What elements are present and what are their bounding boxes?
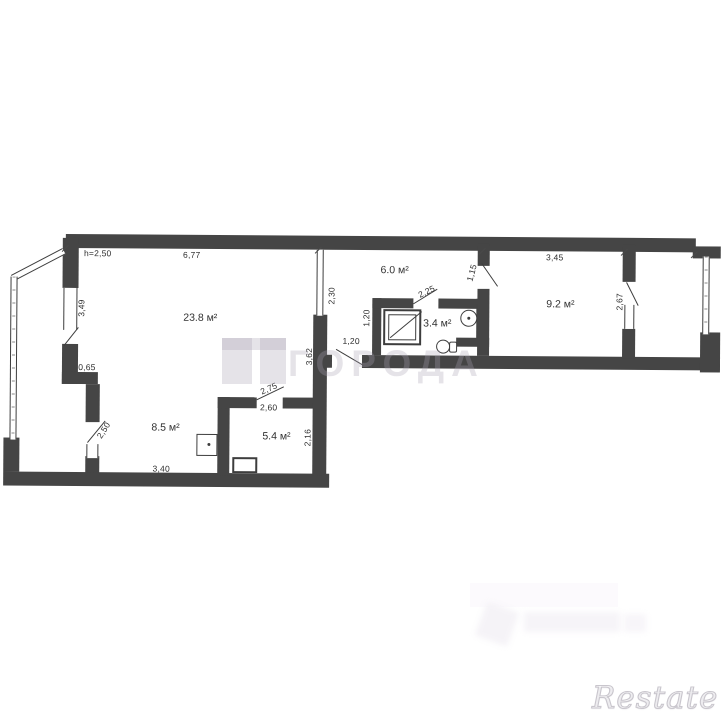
dimension-label-left-window: 3,49 [76,299,86,316]
watermark-logo-leg [260,338,286,384]
wall-inner-tall [312,315,327,476]
watermark-logo-leg [222,338,252,384]
dimension-label-room54-height: 2,16 [302,429,312,446]
room-area-label-living: 23.8 м² [183,312,217,324]
room-area-label-kitchen: 8.5 м² [151,422,179,434]
wall-balcony2-left-bottom [622,329,635,359]
window-balcony2-right [702,256,710,334]
room-area-label-bathroom: 3.4 м² [423,317,451,329]
wall-room54-top-b [283,397,315,408]
window-bedroom-balcony [624,305,634,329]
wall-left-step [62,372,98,384]
dimension-label-bath-wall: 1,20 [361,309,371,326]
window-glazing-ticks [704,256,708,334]
wall-room54-top-a [218,397,257,408]
door-swing-bedroom-balcony [626,282,639,306]
sink-dot [467,317,470,320]
dimension-label-bedroom-width: 3,45 [546,252,563,262]
center-watermark-logo [222,338,286,384]
wall-hall-bedroom-stub [478,244,490,266]
dimension-label-balcony-door: 2,67 [614,293,624,310]
faint-watermark-shape [524,612,620,632]
wall-bath-top-a [372,298,413,308]
window-kitchen-side [86,444,98,458]
balcony-left-corner [3,438,19,472]
wall-balcony2-corner [700,332,720,372]
room-area-label-hallway: 6.0 м² [380,264,408,276]
dimension-label-bath-door: 2,25 [416,283,436,300]
door-swing-bedroom [481,263,498,287]
faint-watermark-shape [475,601,519,646]
window-glazing-ticks [11,277,15,440]
wall-top [66,234,696,252]
dimension-label-left-step: 0,65 [78,362,95,372]
partition-living-hallway [316,250,323,316]
faint-watermark-shape [624,614,646,632]
floorplan-image: h=2,50 6,77 3,49 0,65 2,50 3,40 2,75 2,6… [0,0,725,725]
faint-watermark [466,580,656,650]
wall-room54-left [217,397,230,475]
dimension-label-room54-width: 2,60 [260,402,277,412]
dimension-label-top-living: 6,77 [183,250,200,260]
dimension-label-kitchen-door: 2,50 [95,420,113,440]
wall-left-top [62,238,78,288]
wall-left-lower [86,384,100,422]
appliance-dot [207,443,210,446]
vent-duct-symbol [232,457,257,473]
window-balcony-diagonal [11,248,66,281]
center-watermark-text: ГОРОДА [288,343,485,385]
dimension-label-kitchen-width: 3,40 [153,464,170,474]
wall-bath-top-b [438,299,478,309]
dimension-label-ceiling-height: h=2,50 [84,248,112,258]
wall-bottom-left [3,472,329,488]
room-area-label-small-room: 5.4 м² [262,430,290,442]
restate-logo-watermark: Restate [592,680,725,722]
dimension-label-bedroom-door: 1,15 [464,263,478,282]
window-balcony-left [9,277,17,440]
room-area-label-bedroom: 9.2 м² [546,298,574,310]
dimension-label-hall-partition: 2,30 [326,287,336,304]
